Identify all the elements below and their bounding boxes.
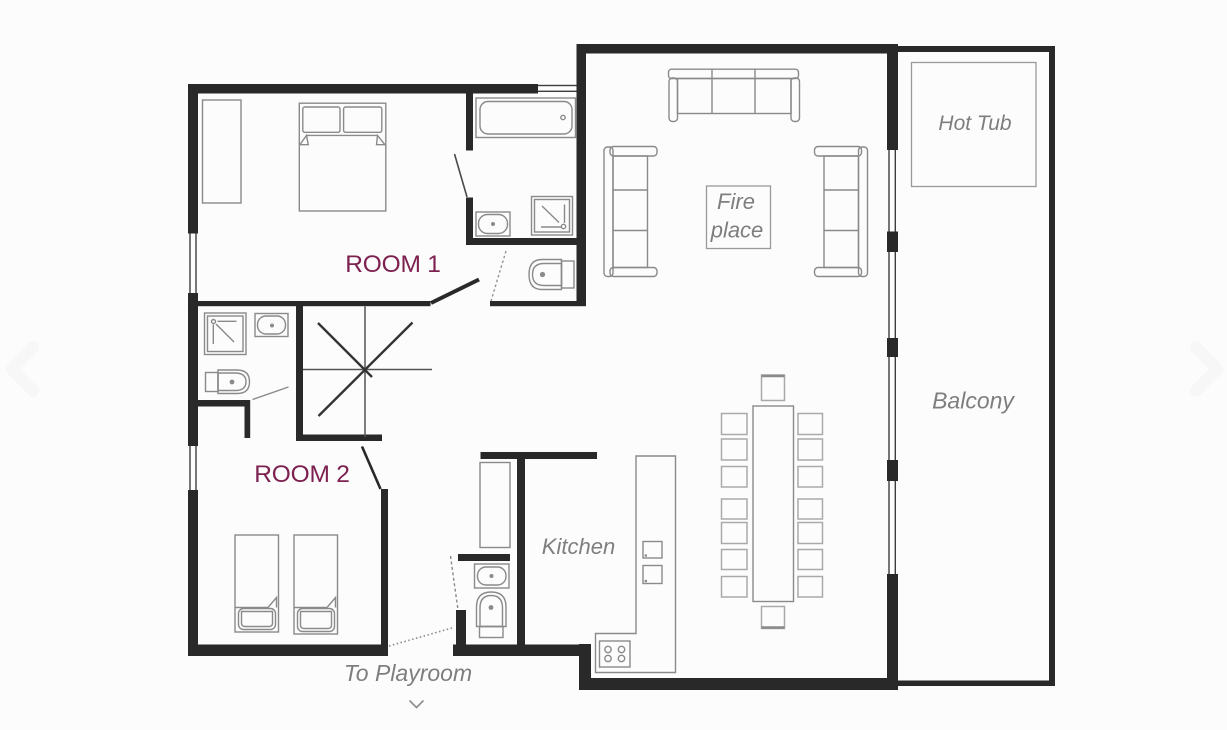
svg-text:ROOM 1: ROOM 1 [345, 251, 440, 278]
svg-text:Kitchen: Kitchen [542, 534, 615, 559]
svg-text:To Playroom: To Playroom [344, 660, 472, 686]
svg-text:Hot Tub: Hot Tub [938, 112, 1011, 135]
svg-text:ROOM 2: ROOM 2 [254, 461, 349, 488]
svg-text:Balcony: Balcony [932, 388, 1015, 414]
svg-text:Fire: Fire [717, 189, 755, 214]
svg-text:place: place [710, 218, 764, 243]
